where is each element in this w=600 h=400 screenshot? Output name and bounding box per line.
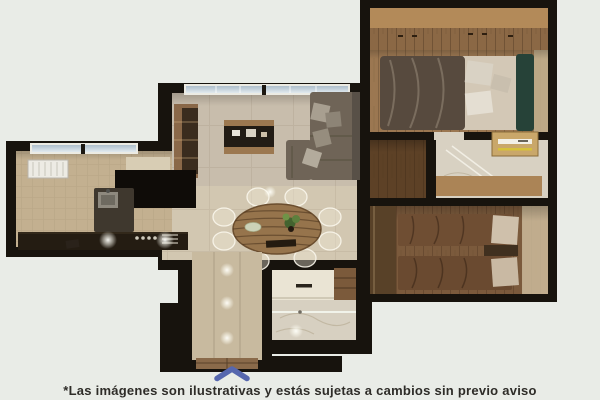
pillow: [491, 257, 519, 287]
closet-strip: [370, 206, 396, 294]
living-room: [172, 84, 360, 186]
nightstand: [484, 245, 518, 256]
pillow: [465, 90, 493, 115]
headboard: [516, 54, 534, 131]
floor-plan-image: [0, 0, 600, 400]
radiator: [28, 160, 68, 178]
entrance-hall: [192, 252, 262, 369]
dresser-band: [436, 176, 542, 196]
tv-console: [224, 120, 274, 154]
bathroom-secondary: [436, 132, 548, 198]
disclaimer-text: *Las imágenes son ilustrativas y estás s…: [0, 383, 600, 398]
bedroom-secondary: [370, 206, 548, 294]
round-dining-table: [233, 204, 321, 254]
chevron-up-icon[interactable]: [212, 365, 252, 382]
vanity: [272, 270, 334, 300]
twin-bed-1: [398, 214, 519, 246]
pillow: [491, 215, 519, 245]
wardrobe: [370, 28, 548, 50]
double-bed: [380, 54, 534, 131]
plate: [245, 223, 261, 232]
bath-wood-shelf: [334, 268, 356, 300]
bath-cabinet: [492, 132, 538, 156]
hall-closet: [370, 140, 426, 198]
bathroom-main: [272, 268, 356, 340]
twin-bed-2: [398, 256, 519, 290]
kitchen: [16, 143, 196, 250]
kitchen-window: [30, 143, 138, 154]
kitchen-island-sink: [94, 188, 134, 232]
bedroom-master: [370, 8, 548, 140]
media-cabinet: [174, 104, 198, 178]
pillow: [465, 60, 494, 85]
ceiling-light: [264, 186, 276, 198]
door-opening: [434, 132, 464, 140]
real-estate-listing-image: *Las imágenes son ilustrativas y estás s…: [0, 0, 600, 400]
vanity-faucet: [296, 284, 312, 288]
